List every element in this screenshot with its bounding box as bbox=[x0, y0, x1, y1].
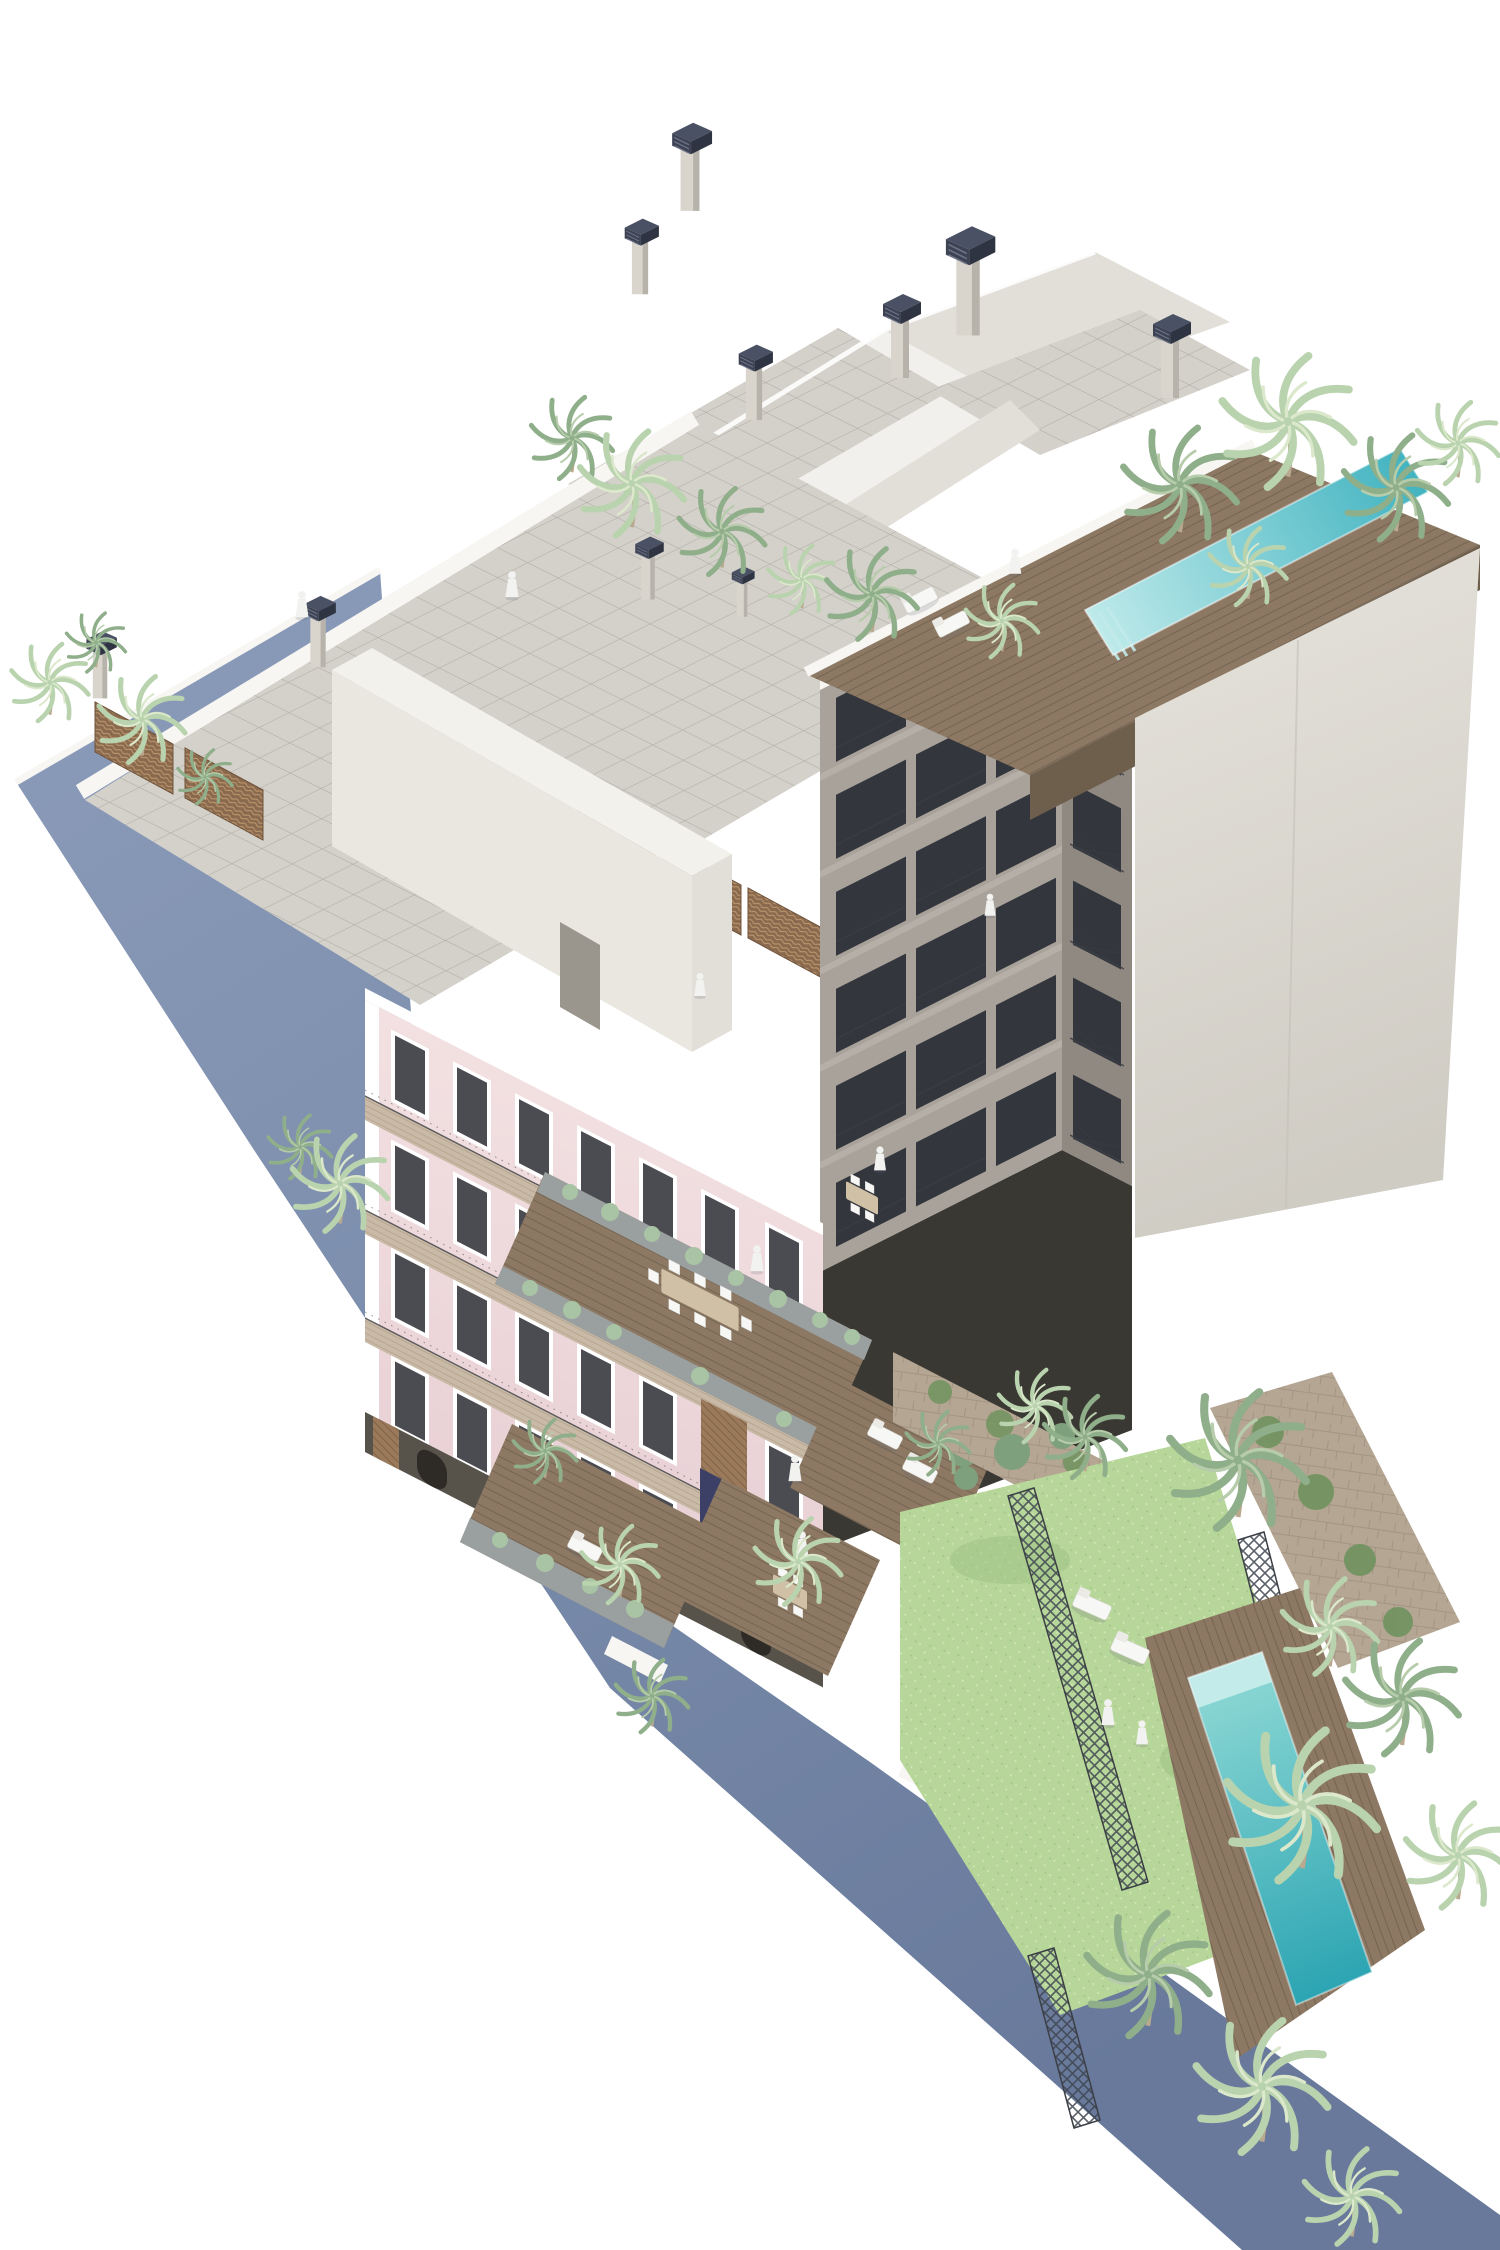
building-rendering bbox=[0, 0, 1500, 2250]
rendering-canvas bbox=[0, 0, 1500, 2250]
